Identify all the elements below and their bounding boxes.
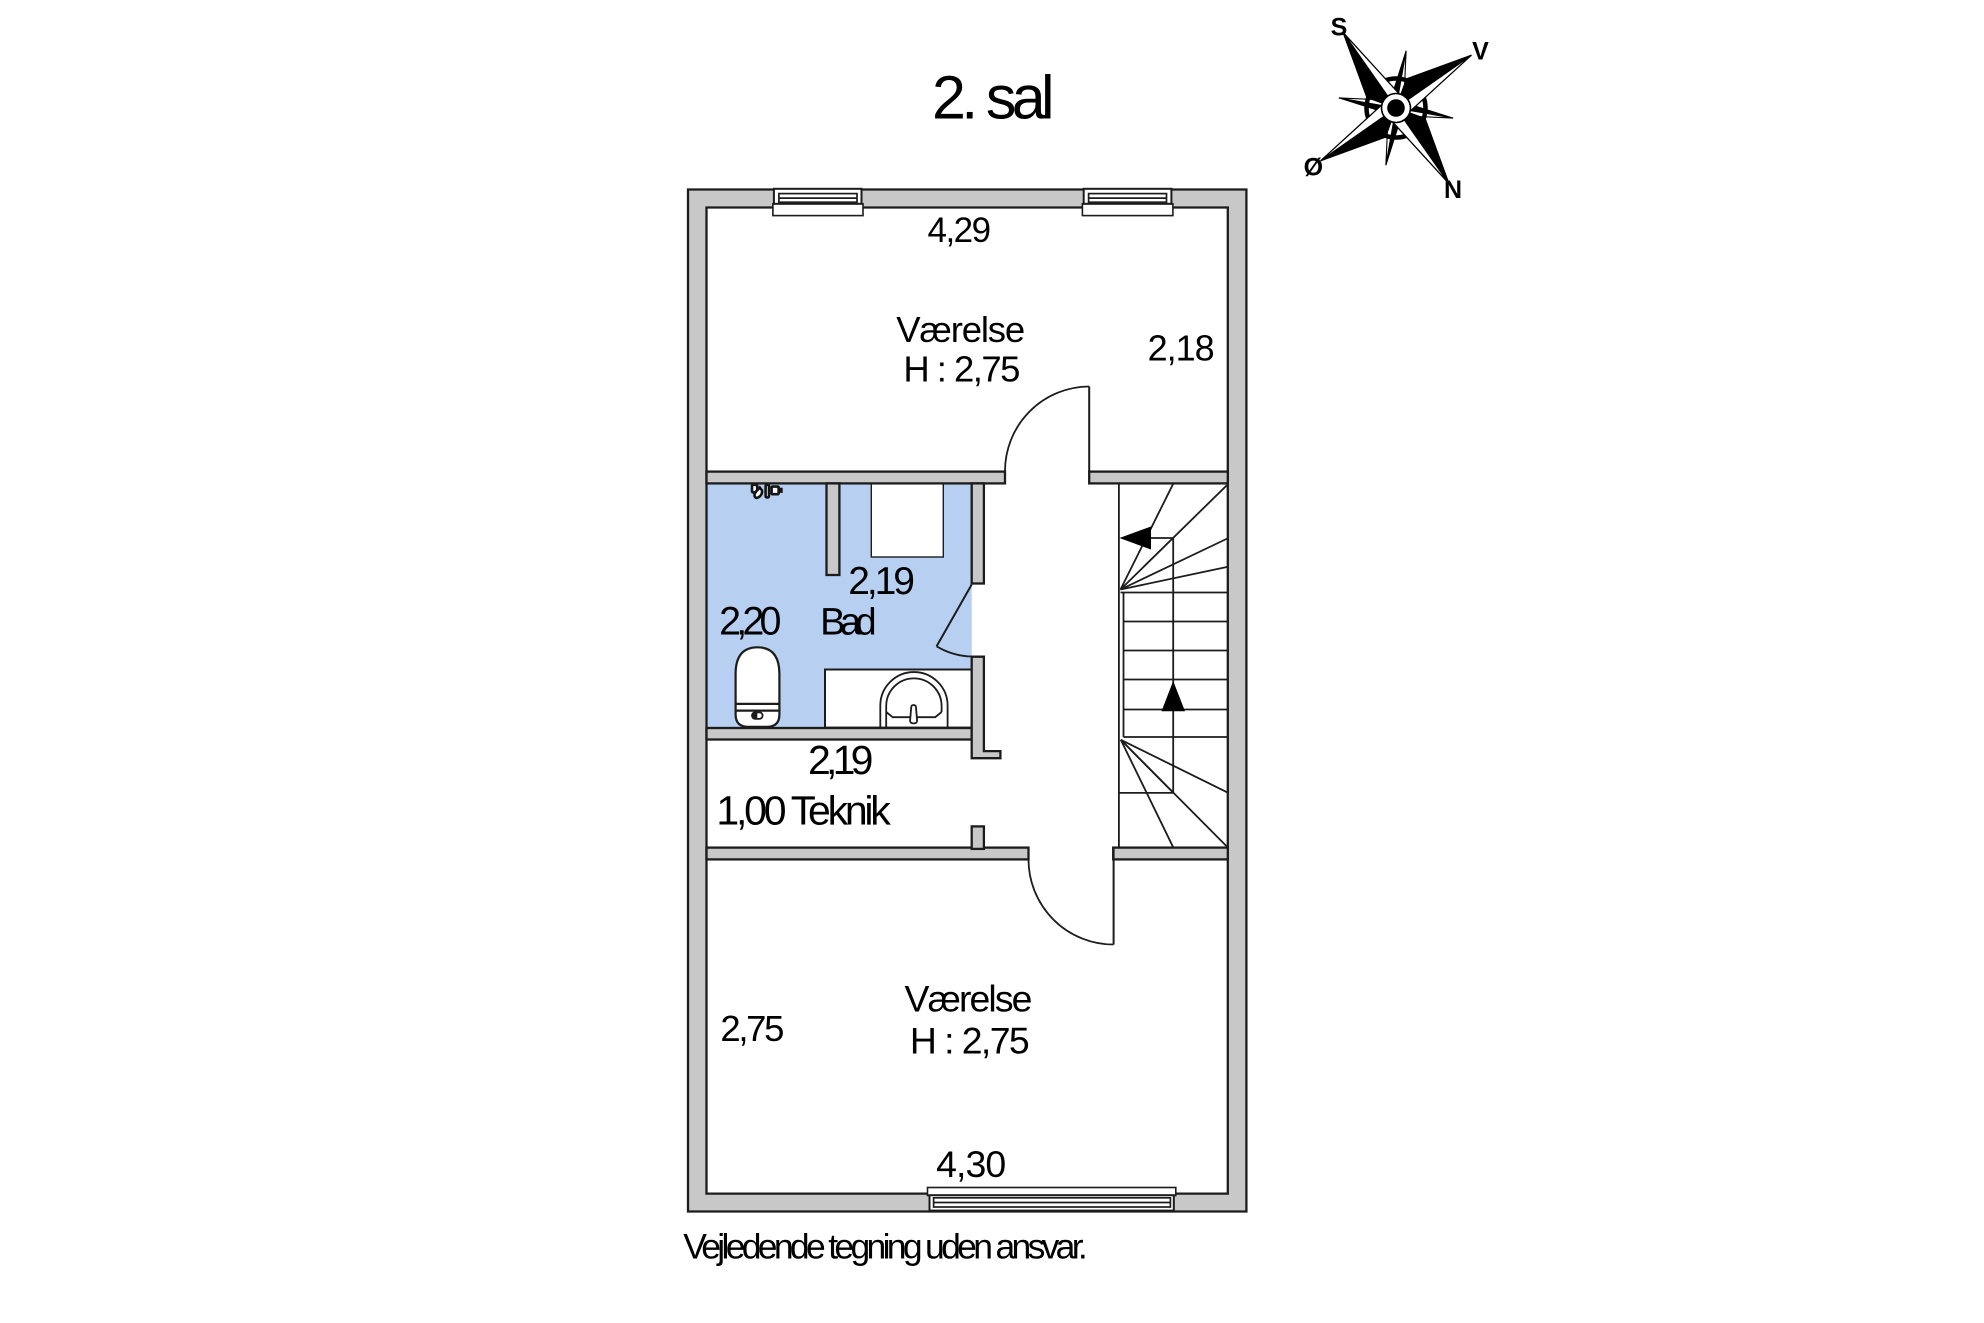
svg-text:1,00 Teknik: 1,00 Teknik	[716, 788, 891, 834]
svg-text:2,19: 2,19	[808, 737, 874, 783]
svg-text:Ø: Ø	[1304, 153, 1323, 181]
svg-text:Værelse: Værelse	[905, 977, 1033, 1019]
svg-text:Værelse: Værelse	[896, 309, 1025, 350]
svg-text:2,18: 2,18	[1148, 327, 1215, 368]
svg-text:2,19: 2,19	[848, 560, 915, 603]
svg-text:2,75: 2,75	[720, 1008, 784, 1049]
svg-text:Vejledende tegning uden ansvar: Vejledende tegning uden ansvar.	[683, 1226, 1088, 1266]
svg-text:2,20: 2,20	[719, 600, 781, 644]
svg-text:N: N	[1444, 176, 1462, 204]
svg-text:H : 2,75: H : 2,75	[910, 1020, 1030, 1062]
svg-text:Bad: Bad	[820, 602, 877, 644]
svg-text:4,30: 4,30	[936, 1143, 1006, 1185]
svg-text:H : 2,75: H : 2,75	[903, 349, 1020, 390]
svg-text:S: S	[1331, 14, 1348, 42]
svg-text:4,29: 4,29	[928, 211, 992, 250]
svg-text:2. sal: 2. sal	[932, 64, 1055, 132]
svg-text:V: V	[1472, 37, 1489, 65]
